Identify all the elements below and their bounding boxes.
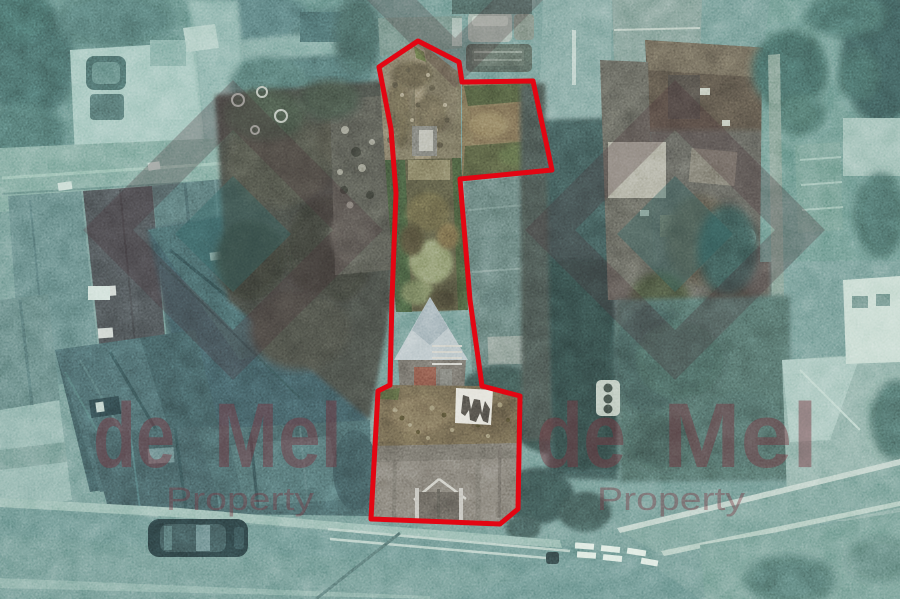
svg-text:Mel: Mel: [663, 385, 818, 487]
svg-text:Mel: Mel: [214, 385, 342, 487]
svg-text:de: de: [93, 385, 175, 487]
svg-text:Property: Property: [166, 481, 314, 517]
svg-text:Property: Property: [597, 481, 745, 517]
svg-text:de: de: [536, 385, 626, 487]
